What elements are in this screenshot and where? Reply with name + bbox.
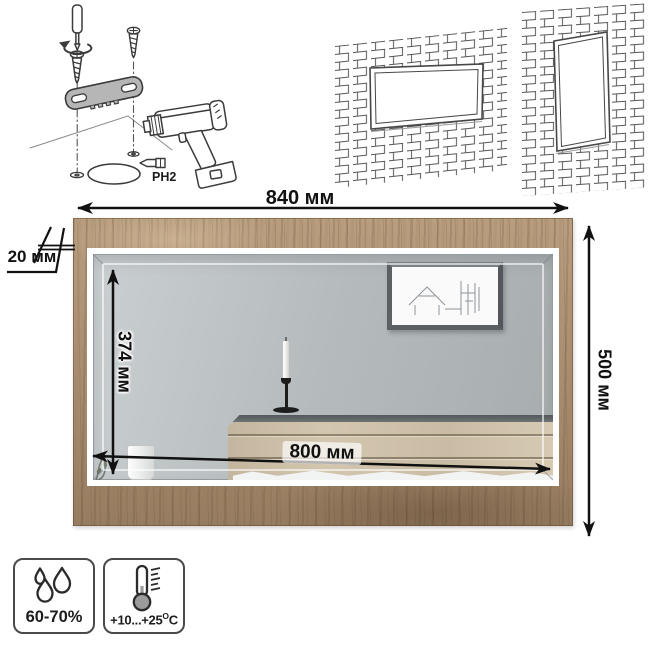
inner-width-label: 800 мм: [282, 441, 362, 465]
reflected-plant-sprig: [93, 450, 120, 480]
screwdriver-icon: [73, 5, 83, 50]
cutout-ellipse: [88, 164, 140, 184]
water-drops-icon: [27, 564, 81, 610]
reflected-cup: [127, 445, 155, 480]
temperature-badge: +10...+25OC: [103, 558, 185, 634]
candle-holder-base: [273, 407, 299, 413]
frame-depth-label: 20 мм: [3, 247, 61, 267]
reflected-picture-frame: [387, 262, 503, 330]
inner-height-label: 374 мм: [114, 331, 135, 393]
outer-width-label: 840 мм: [215, 187, 385, 210]
temperature-value: +10...+25OC: [110, 611, 178, 627]
temperature-prefix: +10...+25: [110, 612, 162, 627]
mirror-vertical-outline: [554, 32, 610, 151]
product-diagram-canvas: PH2: [0, 0, 650, 650]
outer-height-label: 500 мм: [594, 349, 615, 411]
reflected-candle: [283, 341, 289, 379]
mirror-frame: [73, 218, 573, 526]
installation-diagram: PH2: [8, 4, 238, 210]
wall-vertical-view: [522, 3, 648, 196]
humidity-value: 60-70%: [26, 608, 83, 627]
screw-icon: [127, 27, 139, 57]
wall-horizontal-view: [335, 28, 507, 188]
picture-sketch: [403, 275, 487, 317]
mounting-orientation-views: [330, 0, 650, 200]
candle-holder-stem: [285, 383, 288, 409]
humidity-badge: 60-70%: [13, 558, 95, 634]
thermometer-icon: [122, 564, 166, 612]
alignment-guide-lines: [77, 52, 133, 172]
screw-icon: [71, 51, 84, 83]
bit-size-label: PH2: [152, 170, 176, 184]
temperature-unit: C: [169, 612, 178, 627]
drill-bit-icon: [140, 159, 165, 168]
reflected-dresser: [228, 415, 553, 480]
